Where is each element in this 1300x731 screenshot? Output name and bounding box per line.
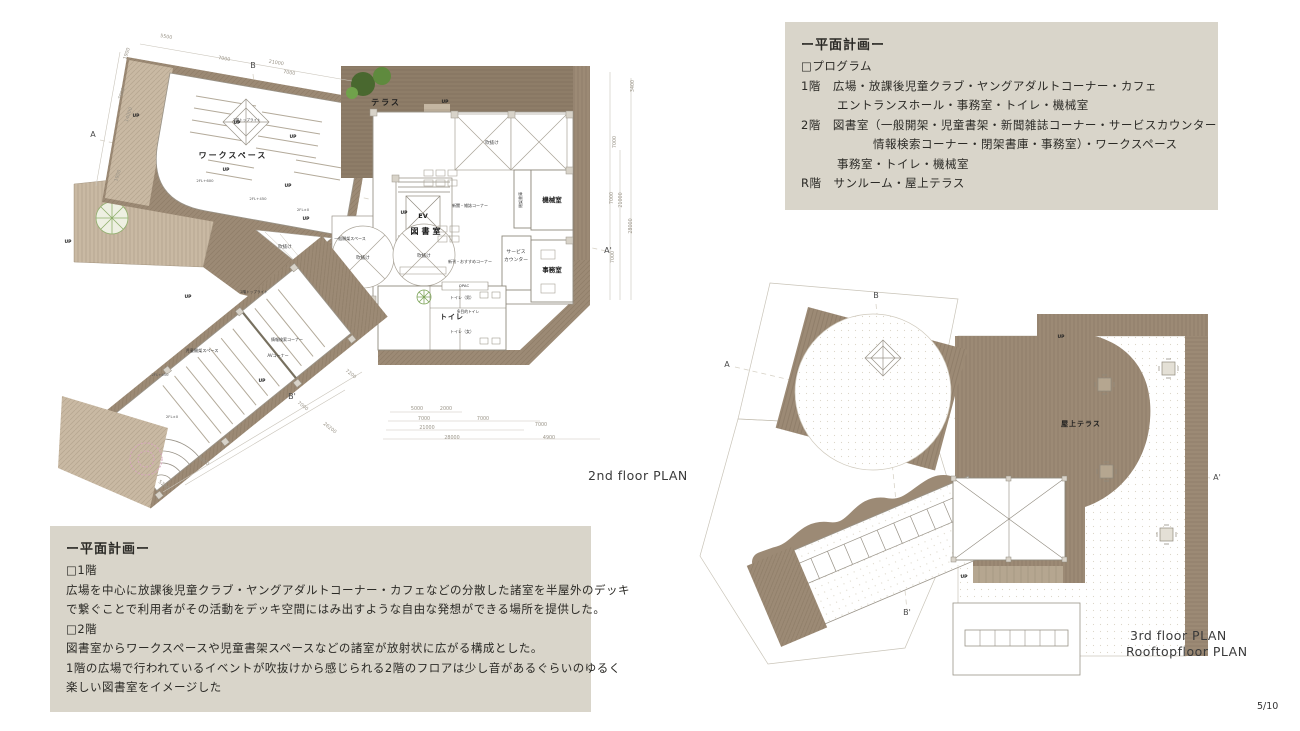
- text-line: エントランスホール・事務室・トイレ・機械室: [801, 96, 1202, 116]
- text-line: 図書室からワークスペースや児童書架スペースなどの諸室が放射状に広がる構成とした。: [66, 639, 575, 659]
- up-label: UP: [285, 183, 293, 189]
- marker-label: B': [903, 608, 911, 617]
- room-label: トイレ: [440, 313, 464, 321]
- presentation-sheet: { "colors": { "deck": "#9c8a75", "terrac…: [0, 0, 1300, 731]
- caption-plan2f: 2nd floor PLAN: [588, 468, 688, 483]
- dim-label: 7000: [612, 136, 618, 148]
- plan-label: カウンター: [504, 256, 528, 263]
- dim-label: 7000: [610, 251, 616, 263]
- dim-label: 5500: [160, 33, 173, 41]
- plan-label: 多目的トイレ: [457, 309, 480, 314]
- up-label: UP: [65, 239, 73, 245]
- dim-label: 7000: [283, 69, 296, 77]
- dim-label: 7000: [535, 422, 547, 428]
- void-squares: [455, 114, 567, 170]
- tree-outline-icon: [96, 202, 128, 234]
- plan-label: トイレ（女）: [450, 328, 474, 334]
- dim-label: 5000: [411, 406, 423, 412]
- up-label: UP: [401, 210, 409, 216]
- up-label: UP: [303, 216, 311, 222]
- level-label: 2FL+450: [151, 372, 169, 377]
- room-label: 屋上テラス: [1061, 419, 1101, 428]
- plan-3f: 屋上テラスABA'B'UPUP: [700, 283, 1221, 675]
- plan-label: 新聞・雑誌コーナー: [452, 202, 488, 208]
- room-label: 事務室: [542, 265, 562, 274]
- page-number: 5/10: [1257, 701, 1278, 712]
- text-line: R階 サンルーム・屋上テラス: [801, 174, 1202, 194]
- up-label: UP: [185, 294, 193, 300]
- text-line: 楽しい図書室をイメージした: [66, 678, 575, 698]
- bottom-skylight: [953, 603, 1080, 675]
- dim-label: 28000: [628, 218, 634, 233]
- dim-label: 7000: [609, 192, 615, 204]
- dim-label: 4900: [543, 435, 555, 441]
- room-label: EV: [418, 212, 427, 220]
- text-line: 1階 広場・放課後児童クラブ・ヤングアダルトコーナー・カフェ: [801, 77, 1202, 97]
- dim-label: 28000: [444, 435, 459, 441]
- text-line: □2階: [66, 620, 575, 640]
- up-label: UP: [1058, 334, 1066, 340]
- room-label: 機械室: [542, 195, 562, 204]
- marker-label: B: [873, 291, 879, 300]
- caption-plan3f-line1: 3rd floor PLAN: [1130, 628, 1227, 643]
- marker-label: B: [250, 61, 256, 70]
- marker-label: A: [90, 130, 96, 139]
- dim-label: 7200: [344, 368, 357, 380]
- plan-label: 吹抜け: [485, 139, 499, 146]
- up-label: UP: [259, 378, 267, 384]
- level-label: 2FL±0: [166, 414, 179, 419]
- marker-label: A': [1213, 473, 1221, 482]
- dim-label: 21000: [419, 425, 434, 431]
- up-label: UP: [234, 120, 242, 126]
- dim-label: 21000: [268, 59, 284, 68]
- room-label: テラス: [371, 98, 401, 107]
- dim-label: 21000: [618, 192, 624, 207]
- rotated-roof: [776, 307, 968, 470]
- text-line: 事務室・トイレ・機械室: [801, 155, 1202, 175]
- up-label: UP: [442, 99, 450, 105]
- plan-label: 新刊・おすすめコーナー: [448, 258, 492, 264]
- interior-tree-icon: [417, 290, 431, 304]
- description-box: ー平面計画ー □1階広場を中心に放課後児童クラブ・ヤングアダルトコーナー・カフェ…: [50, 526, 591, 712]
- text-line: で繋ぐことで利用者がその活動をデッキ空間にはみ出すような自由な発想ができる場所を…: [66, 600, 575, 620]
- program-box: ー平面計画ー □プログラム1階 広場・放課後児童クラブ・ヤングアダルトコーナー・…: [785, 22, 1218, 210]
- caption-plan3f-line2: Rooftopfloor PLAN: [1126, 644, 1248, 659]
- plan-label: サービス: [506, 248, 525, 255]
- description-box-title: ー平面計画ー: [66, 538, 575, 557]
- text-line: 情報検索コーナー・閉架書庫・事務室）・ワークスペース: [801, 135, 1202, 155]
- program-box-lines: □プログラム1階 広場・放課後児童クラブ・ヤングアダルトコーナー・カフェ エント…: [801, 57, 1202, 194]
- rooftop-stair: [973, 566, 1063, 583]
- plan-label: 吹抜け: [417, 252, 431, 259]
- description-box-lines: □1階広場を中心に放課後児童クラブ・ヤングアダルトコーナー・カフェなどの分散した…: [66, 561, 575, 698]
- plan-label: 閉架書庫: [517, 192, 523, 208]
- up-label: UP: [290, 134, 298, 140]
- sunroom-skylight: [951, 476, 1067, 562]
- up-label: UP: [961, 574, 969, 580]
- text-line: 2階 図書室（一般開架・児童書架・新聞雑誌コーナー・サービスカウンター: [801, 116, 1202, 136]
- plan-label: 情報検索コーナー: [271, 336, 303, 342]
- dim-label: 7000: [418, 416, 430, 422]
- room-label: 図書室: [411, 226, 444, 236]
- plan-label: 吹抜け: [356, 254, 370, 261]
- plan-2f: ワークスペーステラス図書室EV機械室事務室トイレ吹抜け吹抜け吹抜け吹抜け一般開架…: [58, 33, 636, 509]
- plan-label: AVコーナー: [267, 352, 288, 358]
- dim-label: 3400: [630, 80, 636, 92]
- plan-label: 吹抜け: [278, 243, 292, 250]
- dim-label: 7000: [218, 55, 231, 63]
- text-line: 広場を中心に放課後児童クラブ・ヤングアダルトコーナー・カフェなどの分散した諸室を…: [66, 581, 575, 601]
- text-line: □1階: [66, 561, 575, 581]
- plan-label: 2階トップライト: [240, 289, 268, 294]
- dim-label: 2000: [440, 406, 452, 412]
- plan-label: トイレ（男）: [450, 295, 474, 300]
- room-label: ワークスペース: [199, 150, 268, 160]
- program-box-title: ー平面計画ー: [801, 34, 1202, 53]
- text-line: □プログラム: [801, 57, 1202, 77]
- text-line: 1階の広場で行われているイベントが吹抜けから感じられる2階のフロアは少し音がある…: [66, 659, 575, 679]
- marker-label: A: [724, 360, 730, 369]
- sheet-background: ワークスペーステラス図書室EV機械室事務室トイレ吹抜け吹抜け吹抜け吹抜け一般開架…: [0, 0, 1300, 731]
- dim-label: 7000: [477, 416, 489, 422]
- dim-label: 26200: [322, 421, 338, 435]
- level-label: 2FL+450: [249, 196, 267, 201]
- up-label: UP: [223, 167, 231, 173]
- plan-label: 一般開架スペース: [334, 235, 366, 241]
- level-label: 2FL+600: [196, 178, 214, 183]
- level-label: 2FL±0: [297, 207, 310, 212]
- up-label: UP: [133, 113, 141, 119]
- marker-label: B': [288, 392, 296, 401]
- plan-label: OPAC: [459, 283, 470, 288]
- plan-label: 児童開架スペース: [186, 347, 219, 354]
